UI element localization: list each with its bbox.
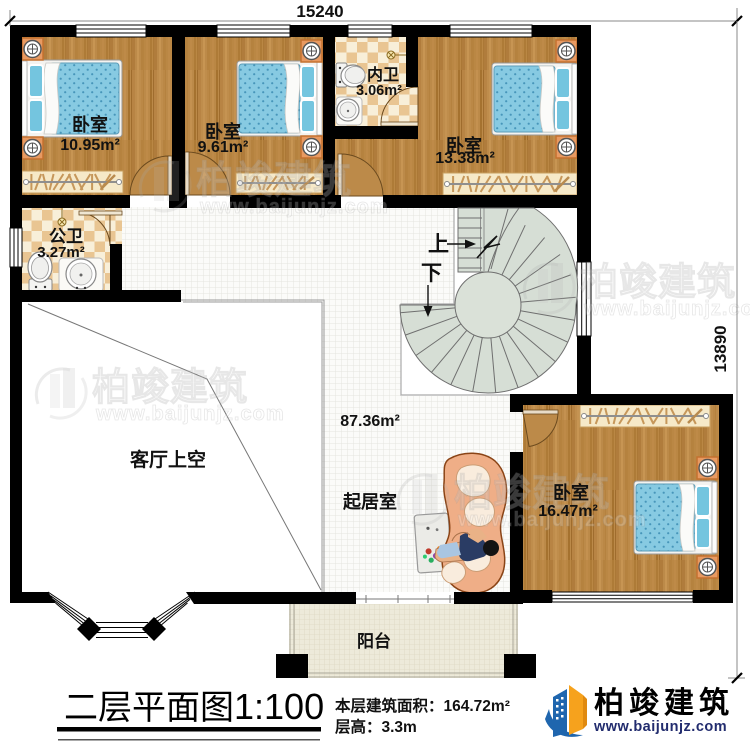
svg-text:卧室: 卧室 [72,114,108,135]
svg-text:www.baijunjz.com: www.baijunjz.com [95,403,285,425]
svg-text:下: 下 [421,262,442,285]
svg-text:柏竣建筑: 柏竣建筑 [594,686,734,720]
svg-text:上: 上 [428,233,449,256]
svg-text:3.27m²: 3.27m² [37,244,85,261]
svg-text:13890: 13890 [711,325,730,372]
svg-text:本层建筑面积：164.72m²: 本层建筑面积：164.72m² [335,696,510,715]
svg-text:www.baijunjz.com: www.baijunjz.com [199,196,389,218]
svg-text:卧室: 卧室 [553,482,589,503]
svg-text:16.47m²: 16.47m² [538,503,598,520]
svg-text:层高：3.3m: 层高：3.3m [335,717,417,736]
svg-text:起居室: 起居室 [342,491,397,512]
svg-text:内卫: 内卫 [367,65,399,84]
svg-text:10.95m²: 10.95m² [60,137,120,154]
svg-text:13.38m²: 13.38m² [435,150,495,167]
svg-text:15240: 15240 [296,2,343,21]
svg-text:3.06m²: 3.06m² [356,83,402,99]
svg-text:9.61m²: 9.61m² [198,139,249,156]
svg-text:二层平面图1:100: 二层平面图1:100 [64,686,324,727]
svg-text:www.baijunjz.com: www.baijunjz.com [593,719,727,735]
svg-text:www.baijunjz.com: www.baijunjz.com [583,298,750,320]
svg-text:87.36m²: 87.36m² [340,413,400,430]
svg-text:客厅上空: 客厅上空 [130,448,206,471]
svg-text:阳台: 阳台 [357,631,391,651]
